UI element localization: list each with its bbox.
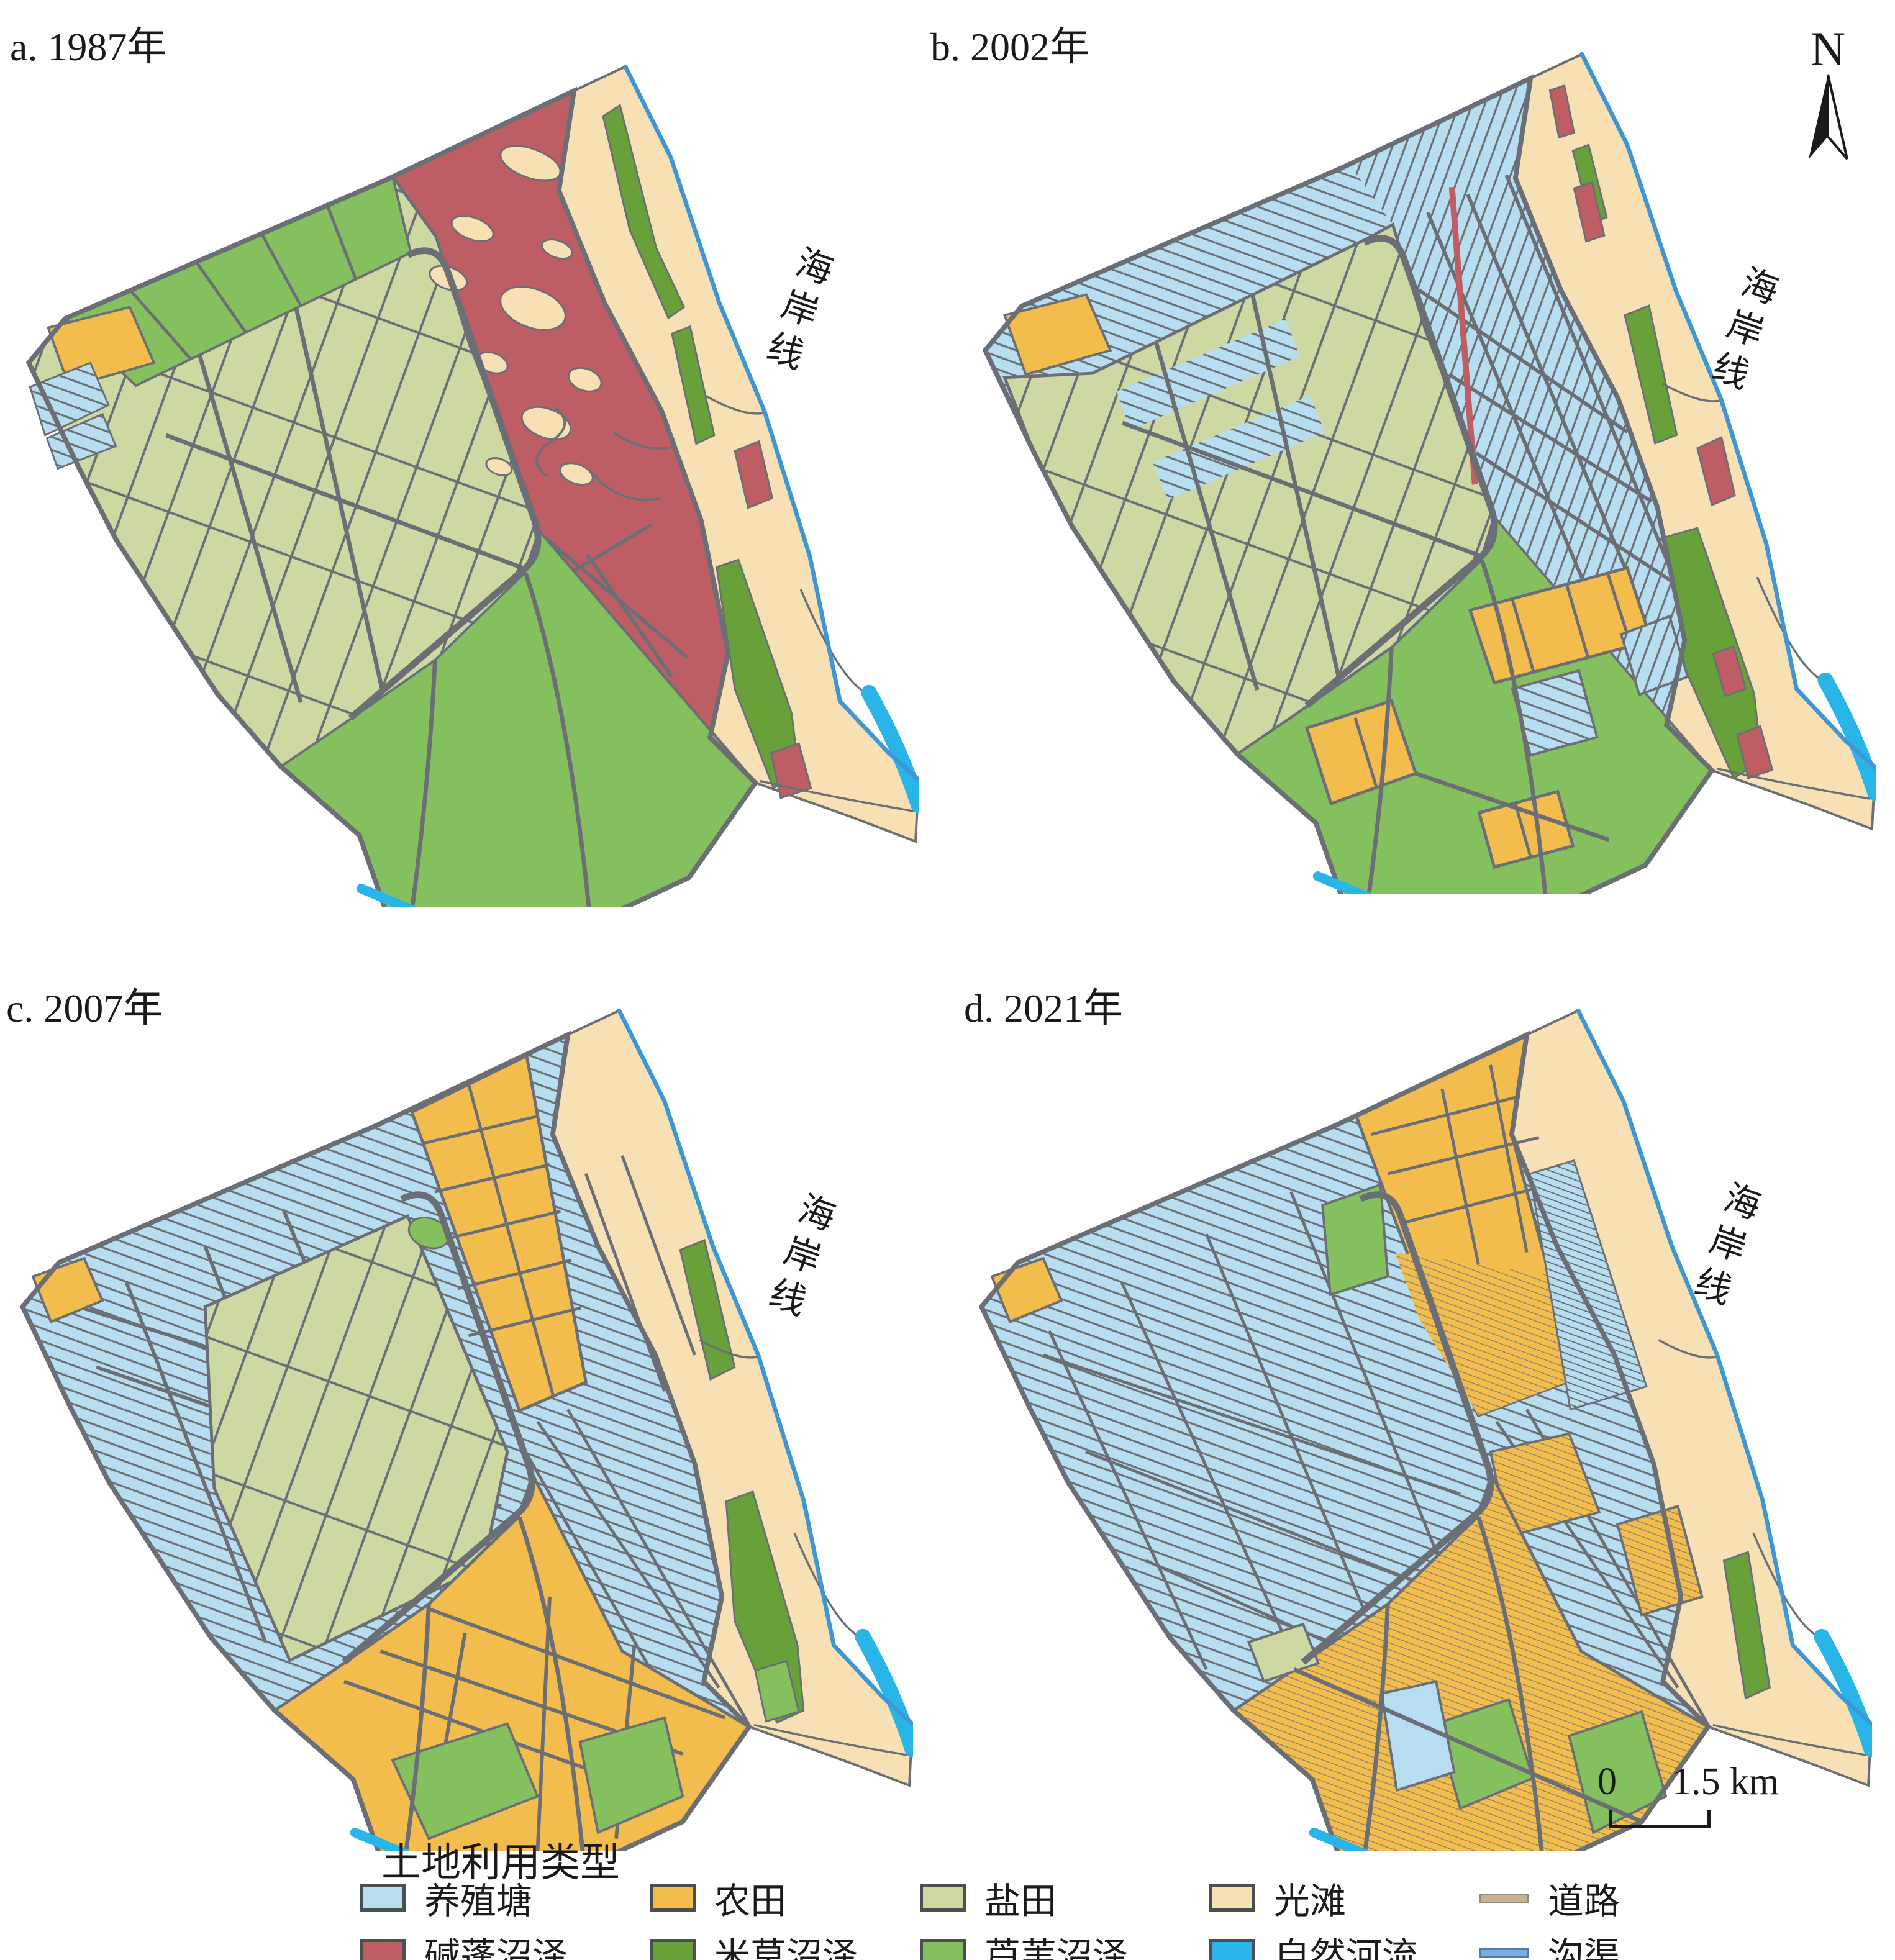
legend-label: 沟渠: [1548, 1926, 1620, 1960]
legend-label: 芦苇沼泽: [984, 1926, 1129, 1960]
map-1987: [11, 48, 919, 907]
legend-item-spartina: 米草沼泽: [650, 1926, 858, 1960]
compass-needle-icon: [1807, 73, 1848, 161]
legend-label: 米草沼泽: [714, 1926, 858, 1960]
flat-swatch: [1209, 1884, 1255, 1912]
legend-item-suaeda: 碱蓬沼泽: [360, 1926, 568, 1960]
north-arrow: N: [1794, 25, 1862, 165]
legend-label: 盐田: [984, 1872, 1057, 1924]
legend-item-road: 道路: [1479, 1872, 1620, 1924]
legend-item-saltpan: 盐田: [920, 1872, 1057, 1924]
scale-bar: 0 1.5 km: [1590, 1760, 1838, 1828]
legend-label: 农田: [714, 1872, 786, 1924]
legend-label: 碱蓬沼泽: [424, 1926, 568, 1960]
road-line-swatch: [1479, 1894, 1529, 1903]
map-2002: [968, 36, 1876, 894]
scale-zero: 0: [1597, 1760, 1617, 1804]
reed-patch: [1322, 1184, 1388, 1294]
legend-item-river: 自然河流: [1209, 1926, 1418, 1960]
scale-bar-rule: [1609, 1810, 1711, 1828]
map-2021: [964, 992, 1872, 1851]
legend-label: 道路: [1548, 1872, 1620, 1924]
scale-max: 1.5 km: [1672, 1760, 1779, 1804]
figure-canvas: a. 1987年 b. 2002年 c. 2007年 d. 2021年: [0, 0, 1895, 1960]
legend-item-farmland: 农田: [650, 1872, 786, 1924]
ditch-line-swatch: [1479, 1948, 1529, 1958]
map-2007: [5, 992, 913, 1851]
legend-label: 养殖塘: [424, 1872, 532, 1924]
legend-label: 自然河流: [1274, 1926, 1418, 1960]
legend-item-pond: 养殖塘: [360, 1872, 532, 1924]
north-label: N: [1794, 25, 1862, 73]
legend-label: 光滩: [1274, 1872, 1346, 1924]
suaeda-swatch: [360, 1939, 406, 1960]
river-swatch: [1209, 1939, 1255, 1960]
farmland-swatch: [650, 1884, 696, 1912]
spartina-swatch: [650, 1939, 696, 1960]
legend-item-flat: 光滩: [1209, 1872, 1346, 1924]
saltpan-swatch: [920, 1884, 966, 1912]
pond-swatch: [360, 1884, 406, 1912]
legend-item-ditch: 沟渠: [1479, 1926, 1620, 1960]
legend-item-reed: 芦苇沼泽: [920, 1926, 1129, 1960]
reed-swatch: [920, 1939, 966, 1960]
